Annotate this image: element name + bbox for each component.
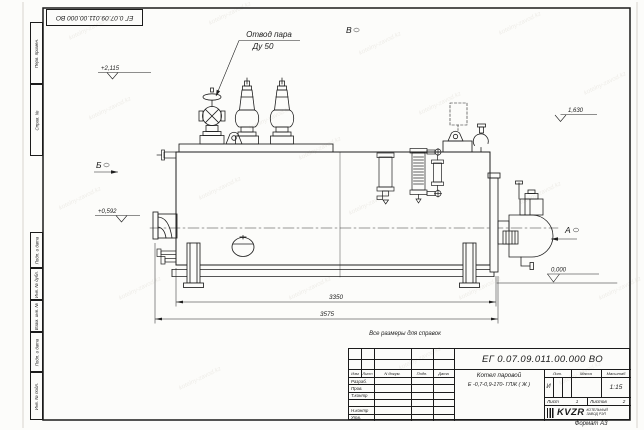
side-column-label: Подп. и дата — [34, 236, 39, 264]
side-column-label: Инв. № дубл. — [34, 270, 39, 297]
elevation-value: 1,630 — [568, 108, 584, 114]
annotations: Отвод пара Ду 50 В Б А — [94, 25, 599, 324]
steam-outlet-label: Отвод пара — [246, 30, 292, 39]
col-header-data: Дата — [433, 369, 454, 377]
watermark-text: kotelny-zavod.kz — [498, 10, 543, 37]
sign-row-nkontr: Н.контр — [351, 407, 374, 414]
elevation-mark-0000: 0,000 — [547, 268, 599, 283]
dimension-value: 3575 — [320, 311, 335, 318]
lifting-lug-right — [448, 131, 463, 141]
watermark-text: kotelny-zavod.kz — [583, 70, 628, 97]
watermark-text: kotelny-zavod.kz — [88, 95, 133, 122]
sheets-value: 2 — [619, 397, 629, 405]
watermark-text: kotelny-zavod.kz — [208, 0, 253, 27]
view-label-left: Б — [94, 160, 118, 174]
watermark-text: kotelny-zavod.kz — [118, 275, 163, 302]
col-header-podp: Подп. — [411, 369, 433, 377]
sheet-value: 1 — [571, 397, 583, 405]
elevation-mark-1630: 1,630 — [555, 108, 597, 122]
side-column-perv-primen: Перв. примен. — [30, 22, 43, 84]
sign-row-prov: Пров. — [351, 385, 374, 392]
drawing-sheet: kotelny-zavod.kz kotelny-zavod.kz koteln… — [0, 0, 644, 430]
elevation-value: +2,115 — [101, 66, 120, 72]
view-label-top: В — [346, 25, 359, 35]
view-label-right: А — [551, 225, 579, 241]
lifting-lug-left — [226, 132, 242, 144]
side-column-sprav: Справ. № — [30, 84, 43, 156]
company-cell: KVZR КОТЕЛЬНЫЙ ЗАВОД РЭП — [544, 405, 630, 420]
steam-outlet-callout: Отвод пара Ду 50 — [216, 30, 300, 96]
elevation-value: 0,000 — [551, 268, 567, 274]
level-gauge-glass — [410, 149, 444, 204]
side-column-podp-data-1: Подп. и дата — [30, 232, 43, 268]
watermark-text: kotelny-zavod.kz — [178, 365, 223, 392]
scale-value: 1:15 — [601, 377, 631, 397]
safety-valve-1 — [235, 78, 258, 144]
boiler-main-view — [150, 78, 617, 288]
format-note: Формат А3 — [552, 421, 630, 427]
sign-row-razrab: Разраб. — [351, 378, 374, 385]
elevation-mark-0592: +0,592 — [95, 209, 140, 222]
col-header-masshtab: Масштаб — [601, 369, 631, 377]
side-column-vzam-inv: Взам. инв. № — [30, 300, 43, 332]
doc-number-flipped: ЕГ 0.07.09.011.00.000 ВО — [56, 14, 133, 21]
top-platform-right — [443, 141, 472, 152]
sheet-label: Лист — [547, 397, 567, 405]
side-column-label: Справ. № — [34, 110, 39, 130]
base-frame-rails — [172, 270, 494, 277]
steam-outlet-dn-label: Ду 50 — [252, 42, 274, 51]
elevation-value: +0,592 — [98, 209, 117, 215]
dimension-value: 3350 — [329, 294, 344, 301]
sheets-label: Листов — [590, 397, 616, 405]
top-stamp-number-box: ЕГ 0.07.09.011.00.000 ВО — [46, 9, 143, 26]
col-header-list: Лист — [361, 369, 374, 377]
feed-elbow — [153, 212, 177, 239]
watermark-text: kotelny-zavod.kz — [288, 275, 333, 302]
company-logo-barcode — [547, 408, 555, 418]
side-column-podp-data-2: Подп. и дата — [30, 332, 43, 372]
drain-stubs — [157, 249, 176, 264]
sign-row-utv: Утв. — [351, 414, 374, 421]
boiler-shell — [176, 152, 490, 265]
doc-number: ЕГ 0.07.09.011.00.000 ВО — [454, 349, 631, 369]
watermark-text: kotelny-zavod.kz — [198, 175, 243, 202]
company-logo-text: KVZR — [557, 407, 584, 418]
sign-row-tkontr: Т.контр — [351, 392, 374, 399]
watermark-text: kotelny-zavod.kz — [58, 185, 103, 212]
watermark-text: kotelny-zavod.kz — [358, 30, 403, 57]
manhole — [232, 236, 254, 257]
view-letter-v: В — [346, 25, 352, 35]
product-name-line2: Е -0,7-0,9-170- ГЛЖ ( Ж ) — [455, 380, 543, 389]
col-header-ndoc: N докум. — [374, 369, 411, 377]
view-letter-a: А — [564, 225, 571, 235]
steam-outlet-valve — [199, 88, 225, 144]
title-block: ЕГ 0.07.09.011.00.000 ВО Котел паровой Е… — [348, 348, 630, 420]
col-header-izm: Изм — [349, 369, 361, 377]
lit-value: И — [544, 377, 553, 397]
gauge-siphon-loop — [473, 124, 488, 152]
product-name-line1: Котел паровой — [455, 371, 543, 380]
watermark-text: kotelny-zavod.kz — [598, 275, 643, 302]
reference-note: Все размеры для справок — [330, 331, 480, 337]
view-letter-b: Б — [96, 160, 102, 170]
elevation-mark-2115: +2,115 — [98, 66, 151, 79]
pressure-gauge-phantom — [450, 103, 467, 132]
side-column-label: Инв. № подл. — [34, 382, 39, 409]
watermark-text: kotelny-zavod.kz — [418, 90, 463, 117]
col-header-massa: Масса — [571, 369, 601, 377]
watermark-text: kotelny-zavod.kz — [298, 135, 343, 162]
sign-row-empty — [351, 400, 374, 407]
dimension-3350: 3350 — [176, 268, 496, 307]
side-column-label: Взам. инв. № — [34, 302, 39, 329]
vent-fitting — [157, 150, 176, 160]
side-column-label: Подп. и дата — [34, 338, 39, 366]
side-column-inv-dubl: Инв. № дубл. — [30, 268, 43, 300]
side-column-inv-podl: Инв. № подл. — [30, 372, 43, 420]
company-name-line2: ЗАВОД РЭП — [586, 413, 607, 417]
col-header-lit: Лит. — [544, 369, 571, 377]
side-column-label: Перв. примен. — [34, 38, 39, 67]
